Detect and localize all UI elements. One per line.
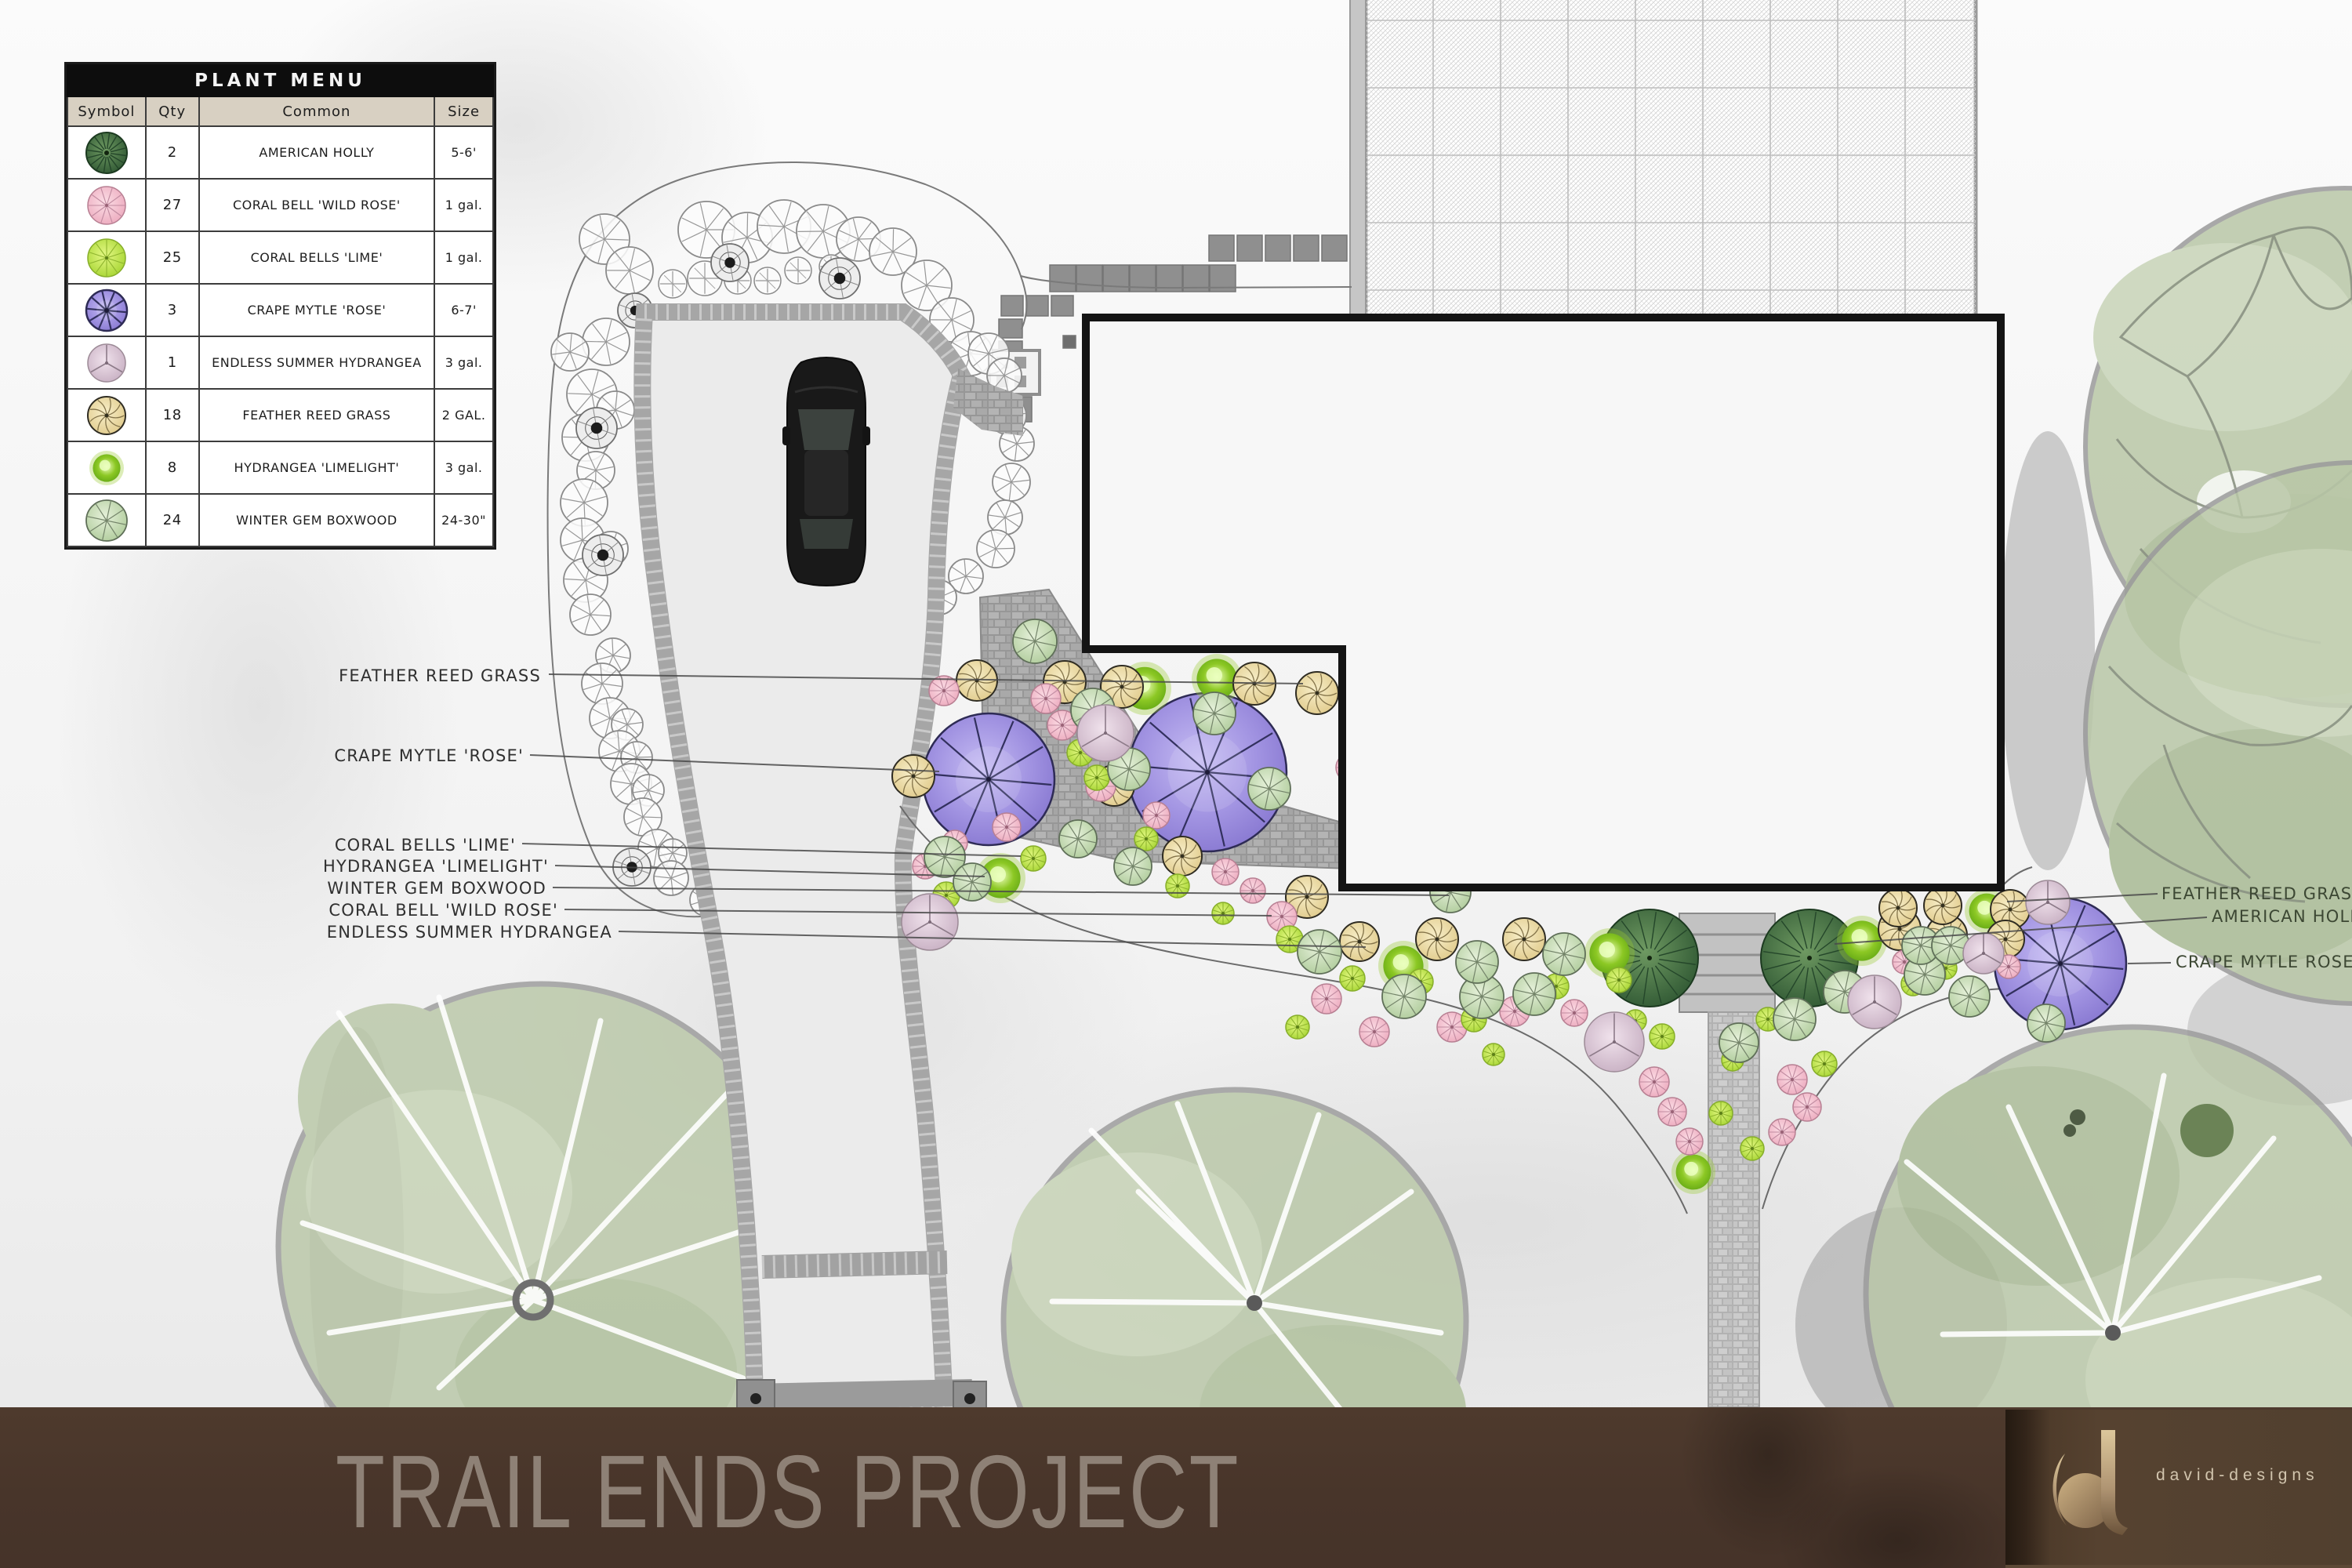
label-feather-reed-grass-left: FEATHER REED GRASS: [339, 666, 541, 686]
patio: [1350, 0, 1976, 318]
lime-icon: [83, 234, 130, 281]
plant-symbol-icon: [67, 179, 146, 231]
label-winter-gem-boxwood: WINTER GEM BOXWOOD: [327, 878, 546, 898]
plant-symbol-icon: [67, 441, 146, 494]
plant-symbol-icon: [67, 126, 146, 179]
crape-icon: [83, 287, 130, 334]
common-name: FEATHER REED GRASS: [199, 389, 435, 441]
label-hydrangea-limelight: HYDRANGEA 'LIMELIGHT': [323, 856, 549, 877]
label-coral-bells-lime: CORAL BELLS 'LIME': [335, 835, 516, 855]
common-name: CORAL BELLS 'LIME': [199, 231, 435, 284]
label-endless-summer-hydrangea: ENDLESS SUMMER HYDRANGEA: [327, 922, 612, 942]
landscape-plan-sheet: PLANT MENU Symbol Qty Common Size 2 AMER…: [0, 0, 2352, 1568]
table-row: 18 FEATHER REED GRASS 2 GAL.: [67, 389, 493, 441]
plant-symbol-icon: [67, 231, 146, 284]
qty-value: 18: [146, 389, 199, 441]
common-name: WINTER GEM BOXWOOD: [199, 494, 435, 546]
table-row: 2 AMERICAN HOLLY 5-6': [67, 126, 493, 179]
col-common: Common: [199, 96, 435, 126]
table-row: 3 CRAPE MYTLE 'ROSE' 6-7': [67, 284, 493, 336]
size-value: 3 gal.: [434, 441, 493, 494]
size-value: 5-6': [434, 126, 493, 179]
col-size: Size: [434, 96, 493, 126]
size-value: 3 gal.: [434, 336, 493, 389]
size-value: 2 GAL.: [434, 389, 493, 441]
common-name: HYDRANGEA 'LIMELIGHT': [199, 441, 435, 494]
boxwood-icon: [83, 497, 130, 544]
common-name: CORAL BELL 'WILD ROSE': [199, 179, 435, 231]
table-row: 1 ENDLESS SUMMER HYDRANGEA 3 gal.: [67, 336, 493, 389]
common-name: CRAPE MYTLE 'ROSE': [199, 284, 435, 336]
label-american-holly: AMERICAN HOLLY: [2212, 906, 2352, 927]
qty-value: 8: [146, 441, 199, 494]
col-symbol: Symbol: [67, 96, 146, 126]
grass-icon: [83, 392, 130, 439]
summer-icon: [83, 339, 130, 387]
plant-symbol-icon: [67, 494, 146, 546]
qty-value: 25: [146, 231, 199, 284]
size-value: 1 gal.: [434, 179, 493, 231]
plant-menu-table: PLANT MENU Symbol Qty Common Size 2 AMER…: [67, 64, 494, 547]
size-value: 24-30": [434, 494, 493, 546]
limelight-icon: [83, 445, 130, 492]
label-feather-reed-grass-right: FEATHER REED GRASS: [2161, 884, 2352, 904]
common-name: AMERICAN HOLLY: [199, 126, 435, 179]
d-stem: [2101, 1430, 2128, 1535]
plant-symbol-icon: [67, 284, 146, 336]
table-row: 25 CORAL BELLS 'LIME' 1 gal.: [67, 231, 493, 284]
plant-menu-title: PLANT MENU: [67, 65, 493, 96]
wildrose-icon: [83, 182, 130, 229]
holly-icon: [83, 129, 130, 176]
patio-edge-band: [1350, 0, 1366, 318]
car: [782, 358, 870, 586]
common-name: ENDLESS SUMMER HYDRANGEA: [199, 336, 435, 389]
plant-symbol-icon: [67, 336, 146, 389]
label-crape-mytle-rose-right: CRAPE MYTLE ROSE': [2176, 952, 2352, 972]
project-title: TRAIL ENDS PROJECT: [336, 1445, 1240, 1539]
col-qty: Qty: [146, 96, 199, 126]
david-designs-logo-icon: [2042, 1425, 2136, 1543]
qty-value: 24: [146, 494, 199, 546]
table-row: 24 WINTER GEM BOXWOOD 24-30": [67, 494, 493, 546]
table-row: 8 HYDRANGEA 'LIMELIGHT' 3 gal.: [67, 441, 493, 494]
table-row: 27 CORAL BELL 'WILD ROSE' 1 gal.: [67, 179, 493, 231]
label-coral-bell-wild-rose: CORAL BELL 'WILD ROSE': [328, 900, 558, 920]
qty-value: 2: [146, 126, 199, 179]
label-crape-mytle-rose-left: CRAPE MYTLE 'ROSE': [334, 746, 524, 766]
plant-symbol-icon: [67, 389, 146, 441]
brand-name: david-designs: [2156, 1466, 2319, 1485]
qty-value: 1: [146, 336, 199, 389]
qty-value: 27: [146, 179, 199, 231]
size-value: 1 gal.: [434, 231, 493, 284]
qty-value: 3: [146, 284, 199, 336]
size-value: 6-7': [434, 284, 493, 336]
